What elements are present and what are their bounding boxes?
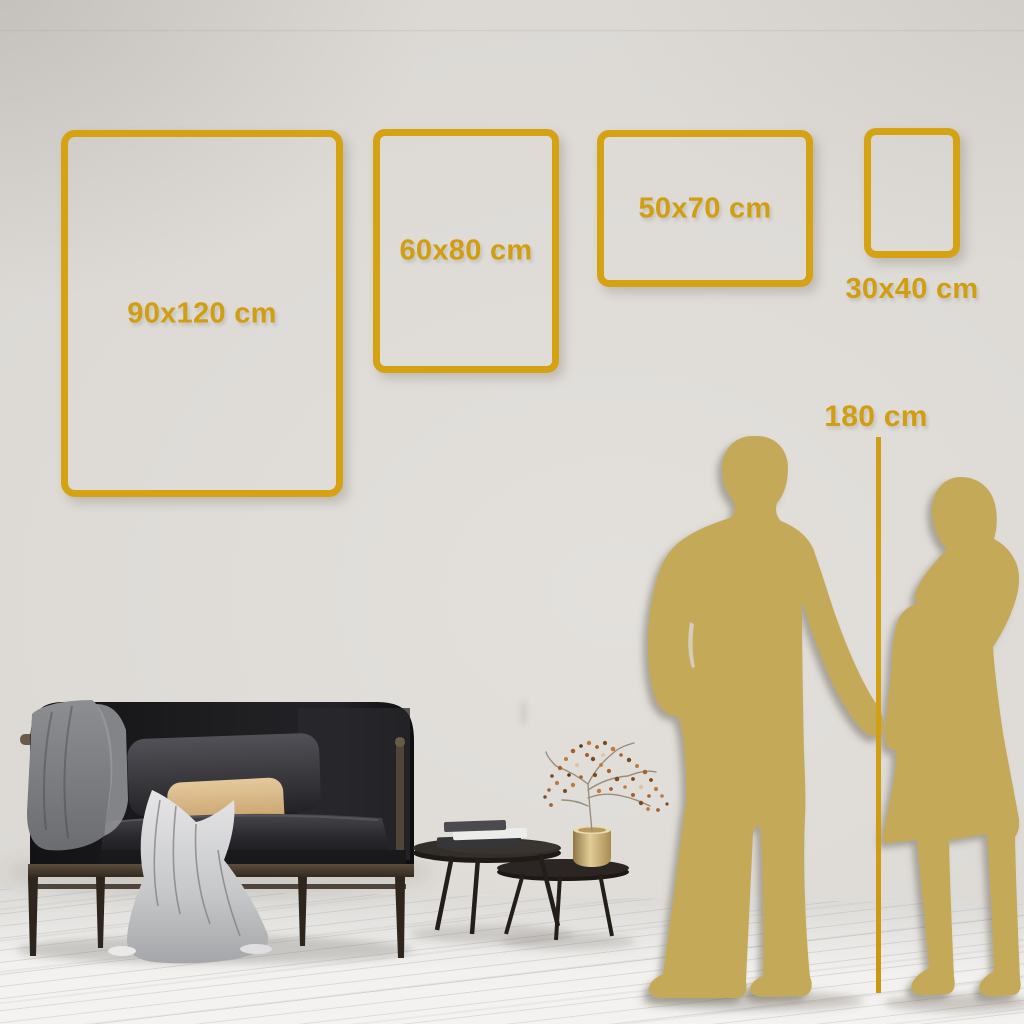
frame-90x120: 90x120 cm [61, 130, 343, 497]
frame-30x40-label: 30x40 cm [845, 273, 978, 306]
berries [543, 741, 668, 812]
couple-silhouettes [648, 436, 1021, 998]
frame-30x40: 30x40 cm [864, 128, 960, 258]
books-stack [437, 820, 527, 849]
sofa [20, 700, 414, 963]
frame-60x80-label: 60x80 cm [399, 235, 532, 268]
size-comparison-scene: 90x120 cm 60x80 cm 50x70 cm 30x40 cm 180… [0, 0, 1024, 1024]
frame-50x70-label: 50x70 cm [638, 192, 771, 225]
height-reference-label: 180 cm [776, 400, 976, 434]
man-silhouette [648, 436, 884, 998]
nesting-coffee-tables [413, 741, 669, 940]
height-reference-line [876, 437, 881, 993]
frame-50x70: 50x70 cm [597, 130, 813, 287]
sofa-wood-post [396, 738, 404, 866]
frame-60x80: 60x80 cm [373, 129, 559, 373]
gold-vase [573, 826, 611, 867]
coffee-table-high [413, 838, 561, 934]
berry-branch [543, 741, 668, 831]
frame-90x120-label: 90x120 cm [127, 297, 276, 330]
woman-silhouette [883, 477, 1020, 996]
